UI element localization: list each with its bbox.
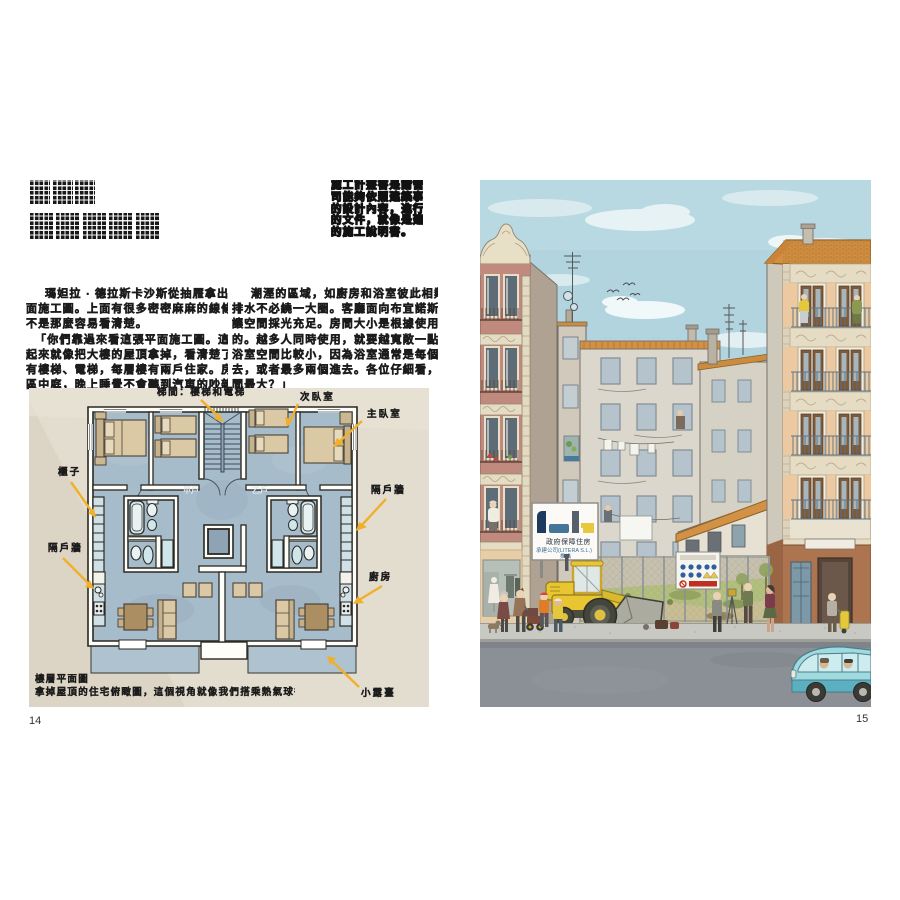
svg-text:政府保障住房: 政府保障住房 [546, 537, 591, 546]
svg-text:承建公司(LITERA S.L.): 承建公司(LITERA S.L.) [536, 546, 592, 554]
